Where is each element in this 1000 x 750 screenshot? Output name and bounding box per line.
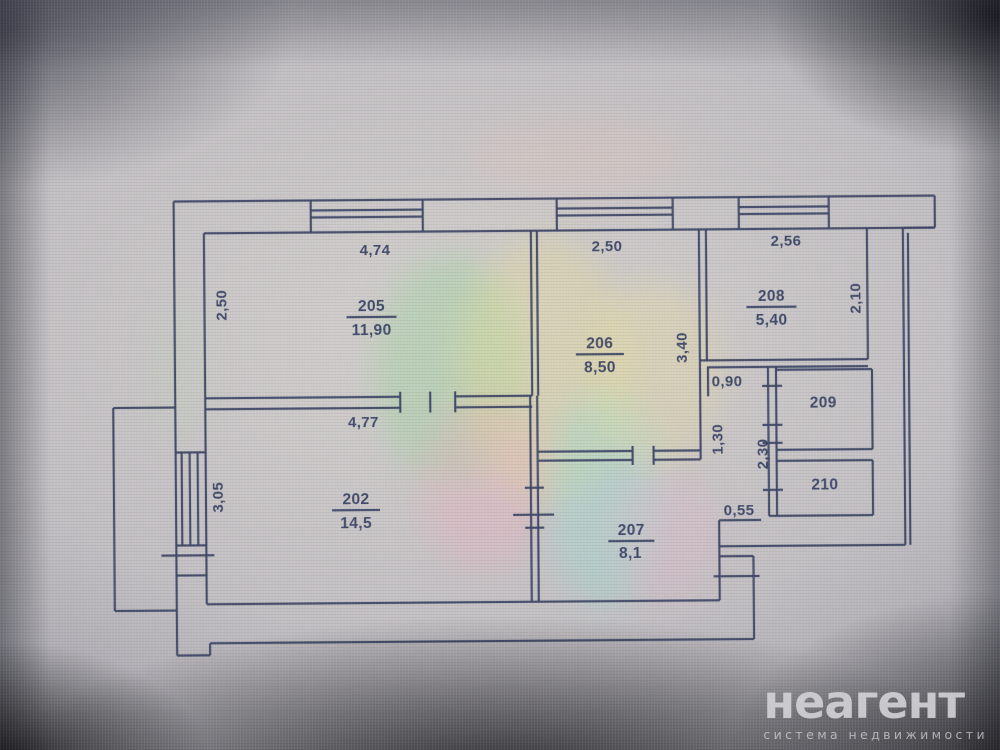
room-210-number: 210 bbox=[811, 476, 838, 493]
dim-corridor-depth1: 1,30 bbox=[709, 424, 726, 455]
room-206-area: 8,50 bbox=[584, 359, 616, 376]
dim-room202-width: 4,77 bbox=[348, 414, 379, 431]
dim-room208-width: 2,56 bbox=[770, 233, 801, 250]
dim-room208-height: 2,10 bbox=[847, 283, 864, 314]
room-206-number: 206 bbox=[586, 335, 613, 352]
room-209-number: 209 bbox=[810, 394, 837, 411]
room-208-number: 208 bbox=[758, 288, 785, 305]
floorplan-photo: 4,74 2,50 2,56 2,50 3,05 3,40 2,10 0,90 … bbox=[0, 0, 1000, 750]
room-207-area: 8,1 bbox=[619, 545, 642, 562]
dim-room206-width: 2,50 bbox=[592, 238, 623, 255]
floor-plan-drawing: 4,74 2,50 2,56 2,50 3,05 3,40 2,10 0,90 … bbox=[0, 0, 1000, 750]
dim-passage-width: 0,90 bbox=[712, 373, 743, 390]
balcony bbox=[113, 408, 177, 611]
top-windows bbox=[311, 196, 829, 232]
dim-corridor-depth2: 2,30 bbox=[755, 438, 772, 469]
dim-room205-height: 2,50 bbox=[213, 290, 230, 321]
dim-room206-height: 3,40 bbox=[674, 332, 691, 363]
dim-room202-height: 3,05 bbox=[210, 482, 227, 513]
interior-walls bbox=[204, 228, 874, 604]
outer-walls bbox=[174, 196, 939, 656]
dim-room205-width: 4,74 bbox=[360, 242, 391, 259]
room-205-number: 205 bbox=[358, 298, 385, 315]
room-205-area: 11,90 bbox=[352, 322, 392, 339]
room-208-area: 5,40 bbox=[756, 312, 788, 329]
room-207-number: 207 bbox=[618, 522, 645, 539]
dim-hall-niche: 0,55 bbox=[724, 502, 755, 519]
room-202-area: 14,5 bbox=[340, 515, 372, 532]
room-202-number: 202 bbox=[342, 491, 369, 508]
